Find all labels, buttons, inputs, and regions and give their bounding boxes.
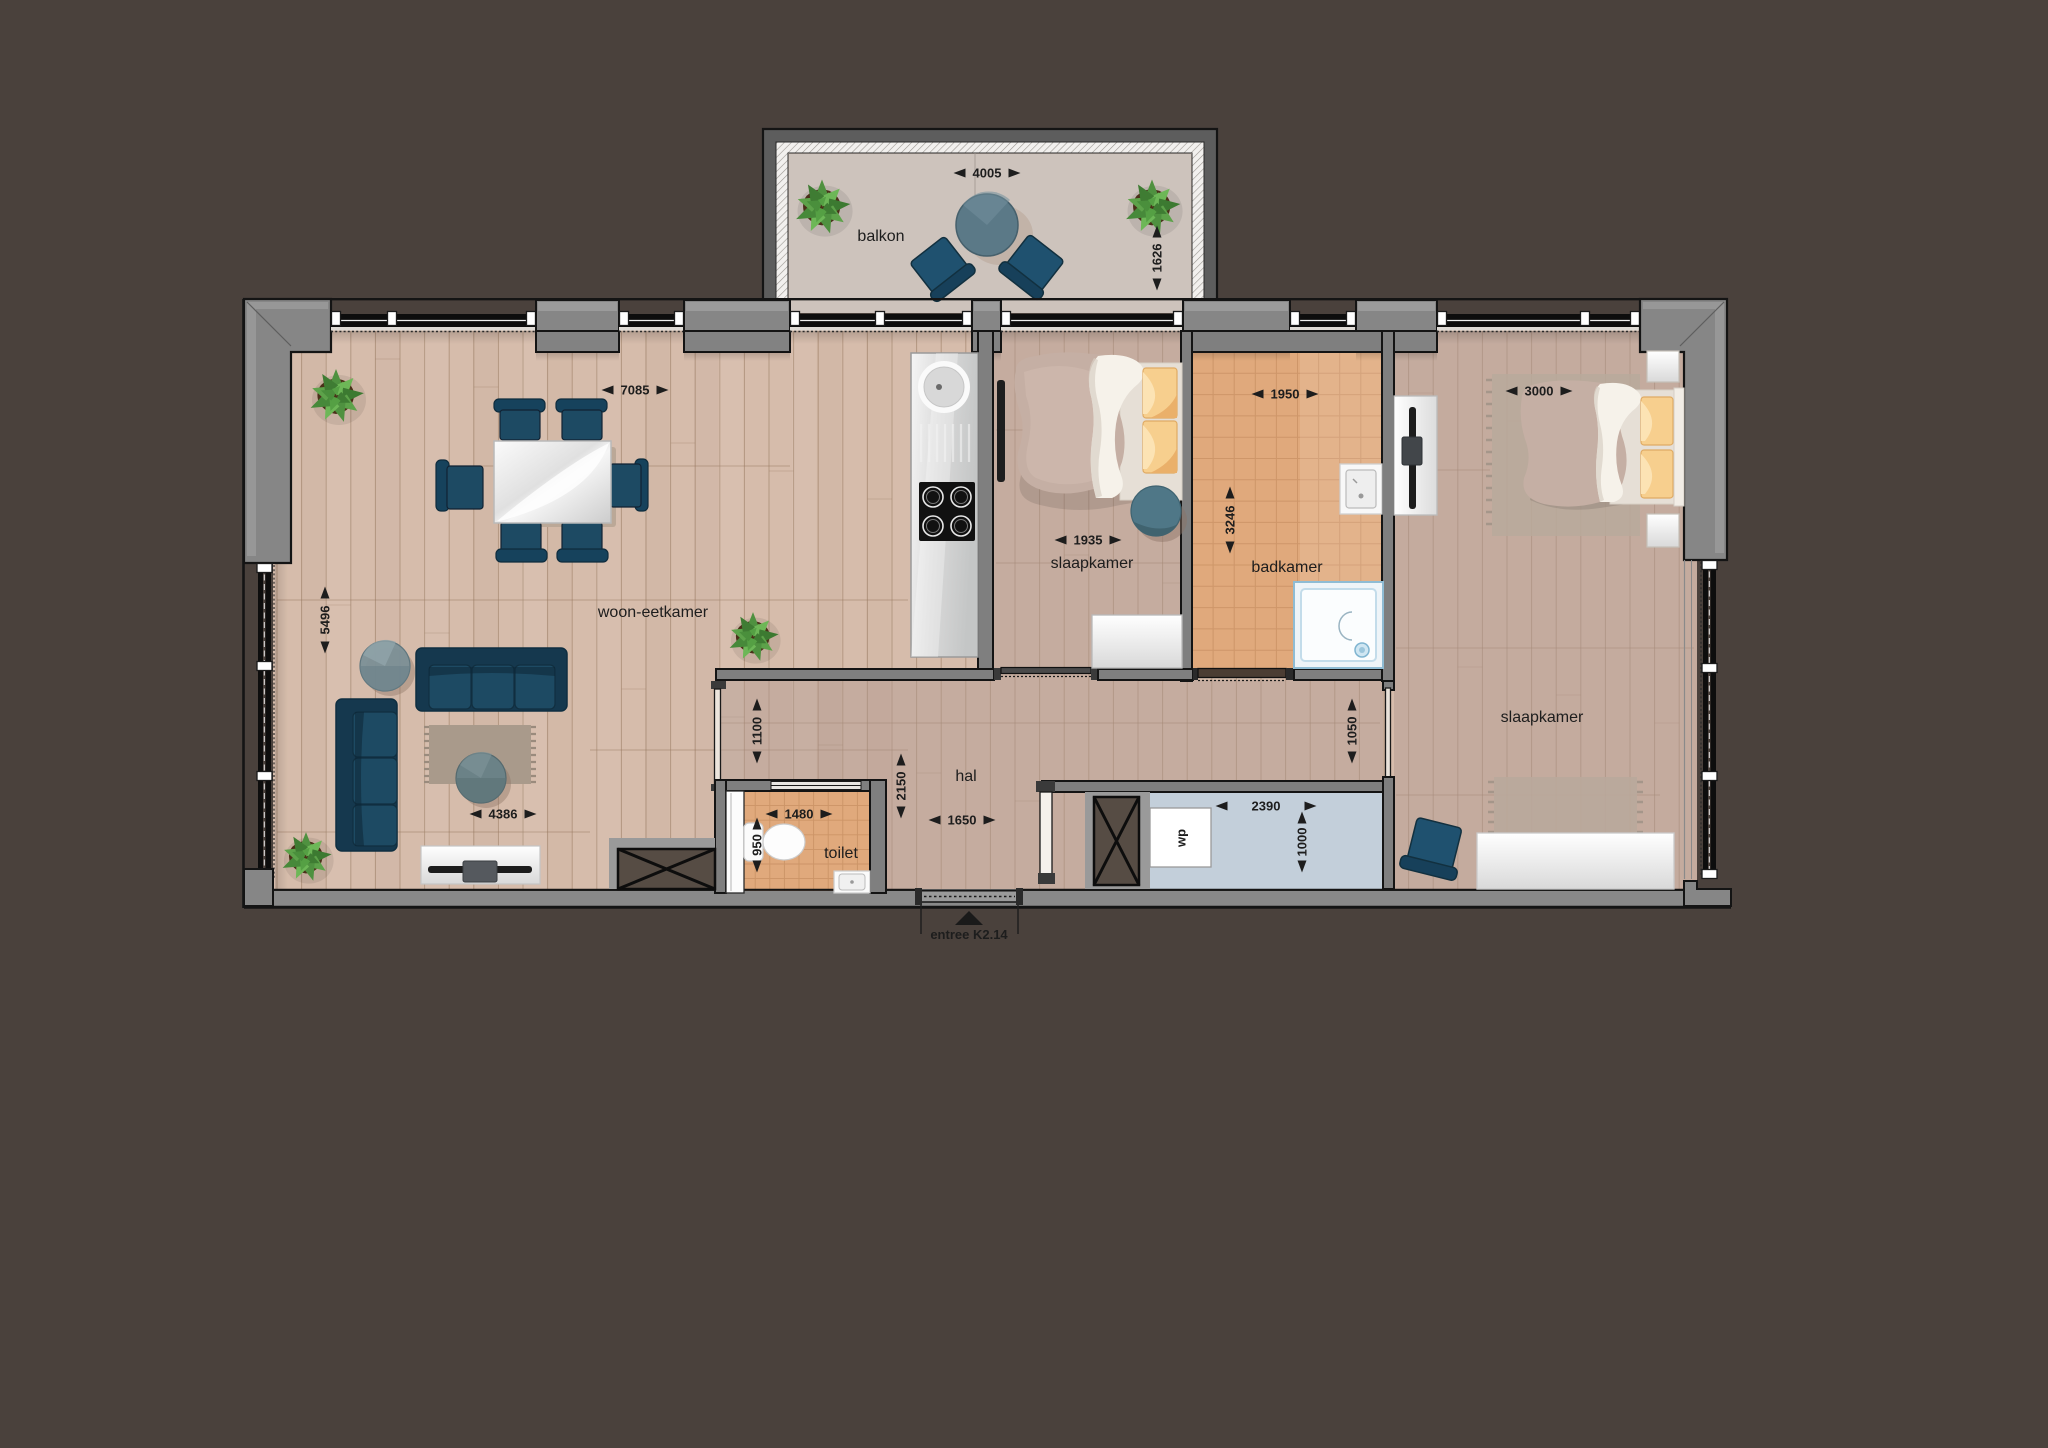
svg-text:wp: wp <box>1174 829 1189 848</box>
svg-text:1626: 1626 <box>1150 244 1165 273</box>
svg-text:badkamer: badkamer <box>1251 559 1323 576</box>
svg-text:slaapkamer: slaapkamer <box>1051 555 1134 572</box>
svg-text:4386: 4386 <box>489 807 518 822</box>
svg-text:1650: 1650 <box>948 813 977 828</box>
svg-text:toilet: toilet <box>824 845 858 862</box>
svg-text:7085: 7085 <box>621 383 650 398</box>
svg-text:5496: 5496 <box>318 606 333 635</box>
svg-text:950: 950 <box>750 834 765 856</box>
svg-text:1050: 1050 <box>1345 717 1360 746</box>
svg-text:1950: 1950 <box>1271 387 1300 402</box>
svg-text:3246: 3246 <box>1223 506 1238 535</box>
svg-text:1935: 1935 <box>1074 533 1103 548</box>
svg-text:slaapkamer: slaapkamer <box>1501 709 1584 726</box>
svg-text:1100: 1100 <box>750 717 765 745</box>
svg-text:entree K2.14: entree K2.14 <box>930 927 1008 942</box>
svg-text:2150: 2150 <box>894 772 909 801</box>
svg-text:2390: 2390 <box>1252 799 1281 814</box>
svg-text:4005: 4005 <box>973 166 1002 181</box>
svg-text:3000: 3000 <box>1525 384 1554 399</box>
svg-text:woon-eetkamer: woon-eetkamer <box>597 604 709 621</box>
svg-text:balkon: balkon <box>857 228 904 245</box>
svg-text:1480: 1480 <box>785 807 814 822</box>
svg-text:1000: 1000 <box>1295 828 1310 857</box>
svg-text:hal: hal <box>955 768 976 785</box>
